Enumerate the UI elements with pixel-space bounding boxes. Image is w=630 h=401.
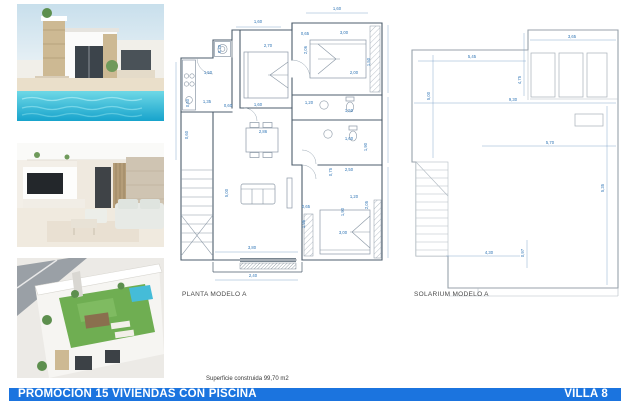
dimension-label: 2,86 — [259, 129, 268, 134]
dimension-label: 5,00 — [426, 91, 431, 100]
dimension-label: 1,50 — [204, 70, 213, 75]
dimension-label: 3,00 — [340, 30, 349, 35]
dimension-label: 1,90 — [363, 142, 368, 151]
built-area-footnote: Superficie construida 99,70 m2 — [206, 376, 289, 382]
living-room-interior-photo — [17, 143, 164, 247]
dimension-label: 5,00 — [224, 188, 229, 197]
dimension-label: 1,20 — [350, 194, 359, 199]
dimension-label: 0,60 — [184, 130, 189, 139]
dimension-label: 5,35 — [600, 183, 605, 192]
dimension-label: 3,80 — [248, 245, 257, 250]
dimension-label: 1,20 — [305, 100, 314, 105]
dimension-label: 1,60 — [333, 6, 342, 11]
villa-exterior-pool-illustration — [17, 4, 164, 121]
dimension-label: 3,65 — [568, 34, 577, 39]
dimension-label: 1,50 — [345, 108, 354, 113]
dimension-label: 2,40 — [249, 273, 258, 278]
dimension-label: 0,70 — [217, 44, 222, 53]
villa-number-label: VILLA 8 — [564, 388, 608, 401]
dimension-label: 2,06 — [303, 45, 308, 54]
dimension-label: 1,60 — [345, 136, 354, 141]
dimension-label: 0,65 — [302, 204, 311, 209]
dimension-label: 2,70 — [264, 43, 273, 48]
dimension-label: 4,75 — [517, 75, 522, 84]
dimension-label: 5,70 — [546, 140, 555, 145]
dimension-label: 2,50 — [345, 167, 354, 172]
dimension-label: 2,00 — [350, 70, 359, 75]
planta-plan-title: PLANTA MODELO A — [182, 291, 247, 298]
dimension-label: 0,75 — [328, 167, 333, 176]
promotion-banner: PROMOCIÓN 15 VIVIENDAS CON PISCINA VILLA… — [9, 388, 621, 401]
brochure-page: 1,601,600,702,701,500,653,002,061,502,00… — [0, 0, 630, 401]
dimension-label: 1,95 — [301, 219, 306, 228]
dimension-label: 0,60 — [224, 103, 233, 108]
dimension-label: 3,00 — [339, 230, 348, 235]
dimension-label: 2,05 — [364, 200, 369, 209]
dimension-label: 1,60 — [254, 19, 263, 24]
rooftop-solarium-3d-photo — [17, 258, 164, 378]
solarium-plan: 3,655,454,755,009,305,705,354,300,97 — [400, 0, 630, 310]
dimension-label: 0,97 — [520, 248, 525, 257]
dimension-label: 9,30 — [509, 97, 518, 102]
dimension-label: 1,35 — [203, 99, 212, 104]
dimension-label: 1,50 — [366, 57, 371, 66]
solarium-plan-title: SOLARIUM MODELO A — [414, 291, 489, 298]
dimension-label: 5,45 — [468, 54, 477, 59]
dimension-label: 0,65 — [301, 31, 310, 36]
floor-plan-planta: 1,601,600,702,701,500,653,002,061,502,00… — [172, 0, 400, 310]
living-room-interior-illustration — [17, 143, 164, 247]
promotion-title: PROMOCIÓN 15 VIVIENDAS CON PISCINA — [18, 388, 257, 401]
dimension-label: 4,30 — [485, 250, 494, 255]
dimension-label: 1,60 — [254, 102, 263, 107]
rooftop-solarium-3d-illustration — [17, 258, 164, 378]
dimension-label: 1,90 — [340, 207, 345, 216]
dimension-label: 0,60 — [185, 98, 190, 107]
villa-exterior-pool-photo — [17, 4, 164, 121]
